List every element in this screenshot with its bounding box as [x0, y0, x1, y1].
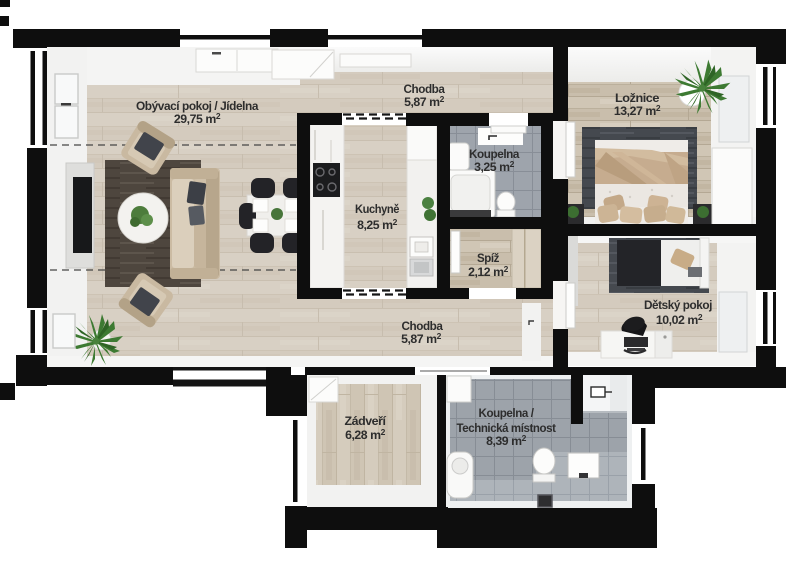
svg-text:10,02 m2: 10,02 m2	[656, 312, 703, 327]
svg-text:Kuchyně: Kuchyně	[355, 202, 400, 216]
svg-text:6,28 m2: 6,28 m2	[345, 427, 386, 442]
svg-text:Dětský pokoj: Dětský pokoj	[644, 298, 712, 312]
svg-text:Ložnice: Ložnice	[615, 91, 660, 105]
svg-text:3,25 m2: 3,25 m2	[474, 159, 515, 174]
svg-text:8,25 m2: 8,25 m2	[357, 217, 398, 232]
svg-text:Spíž: Spíž	[477, 251, 499, 265]
svg-text:29,75 m2: 29,75 m2	[174, 111, 221, 126]
svg-text:Zádveří: Zádveří	[345, 414, 387, 428]
svg-text:13,27 m2: 13,27 m2	[614, 103, 661, 118]
svg-text:Technická místnost: Technická místnost	[457, 421, 556, 435]
svg-text:8,39 m2: 8,39 m2	[486, 433, 527, 448]
svg-text:Koupelna /: Koupelna /	[479, 406, 535, 420]
svg-text:5,87 m2: 5,87 m2	[401, 331, 442, 346]
svg-text:2,12 m2: 2,12 m2	[468, 264, 509, 279]
svg-text:Obývací pokoj / Jídelna: Obývací pokoj / Jídelna	[136, 99, 259, 113]
svg-text:5,87 m2: 5,87 m2	[404, 94, 445, 109]
